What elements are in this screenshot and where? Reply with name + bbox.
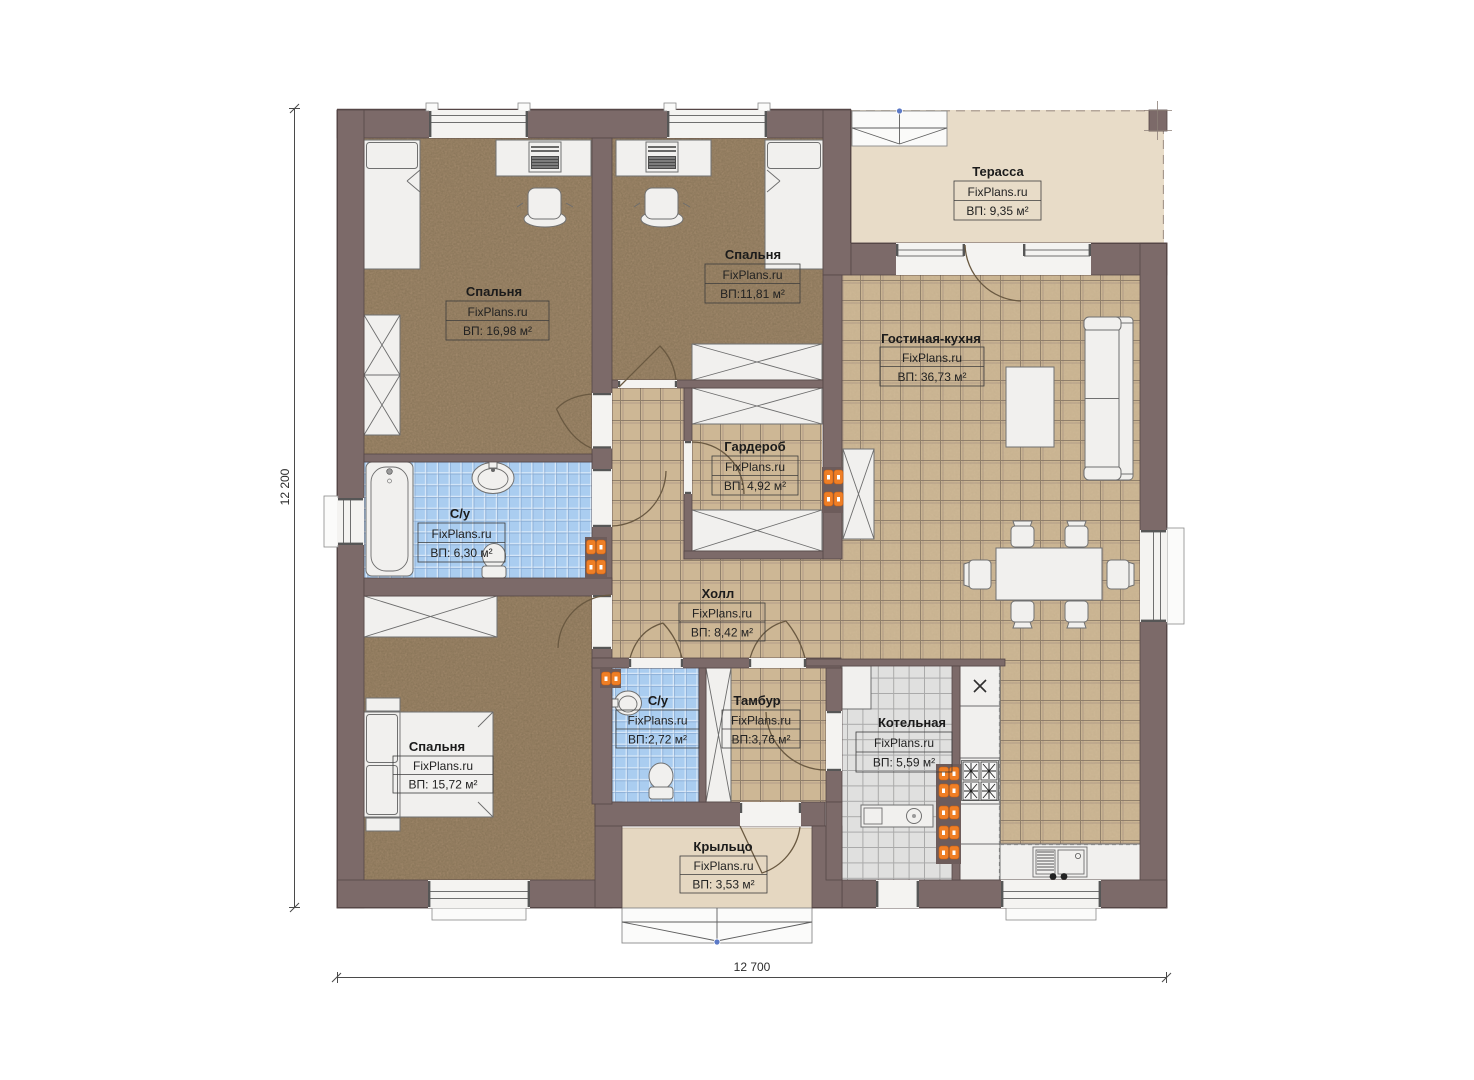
svg-text:Спальня: Спальня xyxy=(466,284,522,299)
svg-text:FixPlans.ru: FixPlans.ru xyxy=(731,714,791,728)
svg-text:12 200: 12 200 xyxy=(278,468,292,505)
svg-text:ВП: 3,53 м²: ВП: 3,53 м² xyxy=(692,878,754,892)
svg-text:FixPlans.ru: FixPlans.ru xyxy=(692,607,752,621)
svg-text:FixPlans.ru: FixPlans.ru xyxy=(722,268,782,282)
svg-text:Холл: Холл xyxy=(702,586,735,601)
svg-text:Котельная: Котельная xyxy=(878,715,946,730)
svg-text:FixPlans.ru: FixPlans.ru xyxy=(693,859,753,873)
svg-text:FixPlans.ru: FixPlans.ru xyxy=(467,305,527,319)
svg-text:С/у: С/у xyxy=(450,506,471,521)
svg-text:ВП: 16,98 м²: ВП: 16,98 м² xyxy=(463,324,532,338)
svg-text:С/у: С/у xyxy=(648,693,669,708)
svg-text:FixPlans.ru: FixPlans.ru xyxy=(967,185,1027,199)
svg-text:ВП:3,76 м²: ВП:3,76 м² xyxy=(732,733,791,747)
svg-text:FixPlans.ru: FixPlans.ru xyxy=(725,460,785,474)
svg-text:ВП: 36,73 м²: ВП: 36,73 м² xyxy=(898,370,967,384)
svg-text:ВП:2,72 м²: ВП:2,72 м² xyxy=(628,733,687,747)
svg-text:ВП: 6,30 м²: ВП: 6,30 м² xyxy=(430,546,492,560)
svg-text:Гардероб: Гардероб xyxy=(724,439,785,454)
svg-text:Гостиная-кухня: Гостиная-кухня xyxy=(881,331,981,346)
svg-text:FixPlans.ru: FixPlans.ru xyxy=(874,736,934,750)
svg-text:ВП: 5,59 м²: ВП: 5,59 м² xyxy=(873,756,935,770)
svg-text:FixPlans.ru: FixPlans.ru xyxy=(902,351,962,365)
svg-text:FixPlans.ru: FixPlans.ru xyxy=(413,759,473,773)
svg-text:FixPlans.ru: FixPlans.ru xyxy=(627,714,687,728)
svg-text:ВП: 8,42 м²: ВП: 8,42 м² xyxy=(691,626,753,640)
svg-text:Крыльцо: Крыльцо xyxy=(693,839,752,854)
svg-text:12 700: 12 700 xyxy=(734,960,771,974)
svg-text:ВП: 15,72 м²: ВП: 15,72 м² xyxy=(409,778,478,792)
svg-text:Спальня: Спальня xyxy=(409,739,465,754)
svg-text:ВП: 9,35 м²: ВП: 9,35 м² xyxy=(966,204,1028,218)
svg-text:ВП: 4,92 м²: ВП: 4,92 м² xyxy=(724,479,786,493)
svg-text:ВП:11,81 м²: ВП:11,81 м² xyxy=(720,287,785,301)
svg-text:Тамбур: Тамбур xyxy=(733,693,780,708)
svg-text:Терасса: Терасса xyxy=(972,164,1024,179)
svg-text:Спальня: Спальня xyxy=(725,247,781,262)
svg-text:FixPlans.ru: FixPlans.ru xyxy=(431,527,491,541)
